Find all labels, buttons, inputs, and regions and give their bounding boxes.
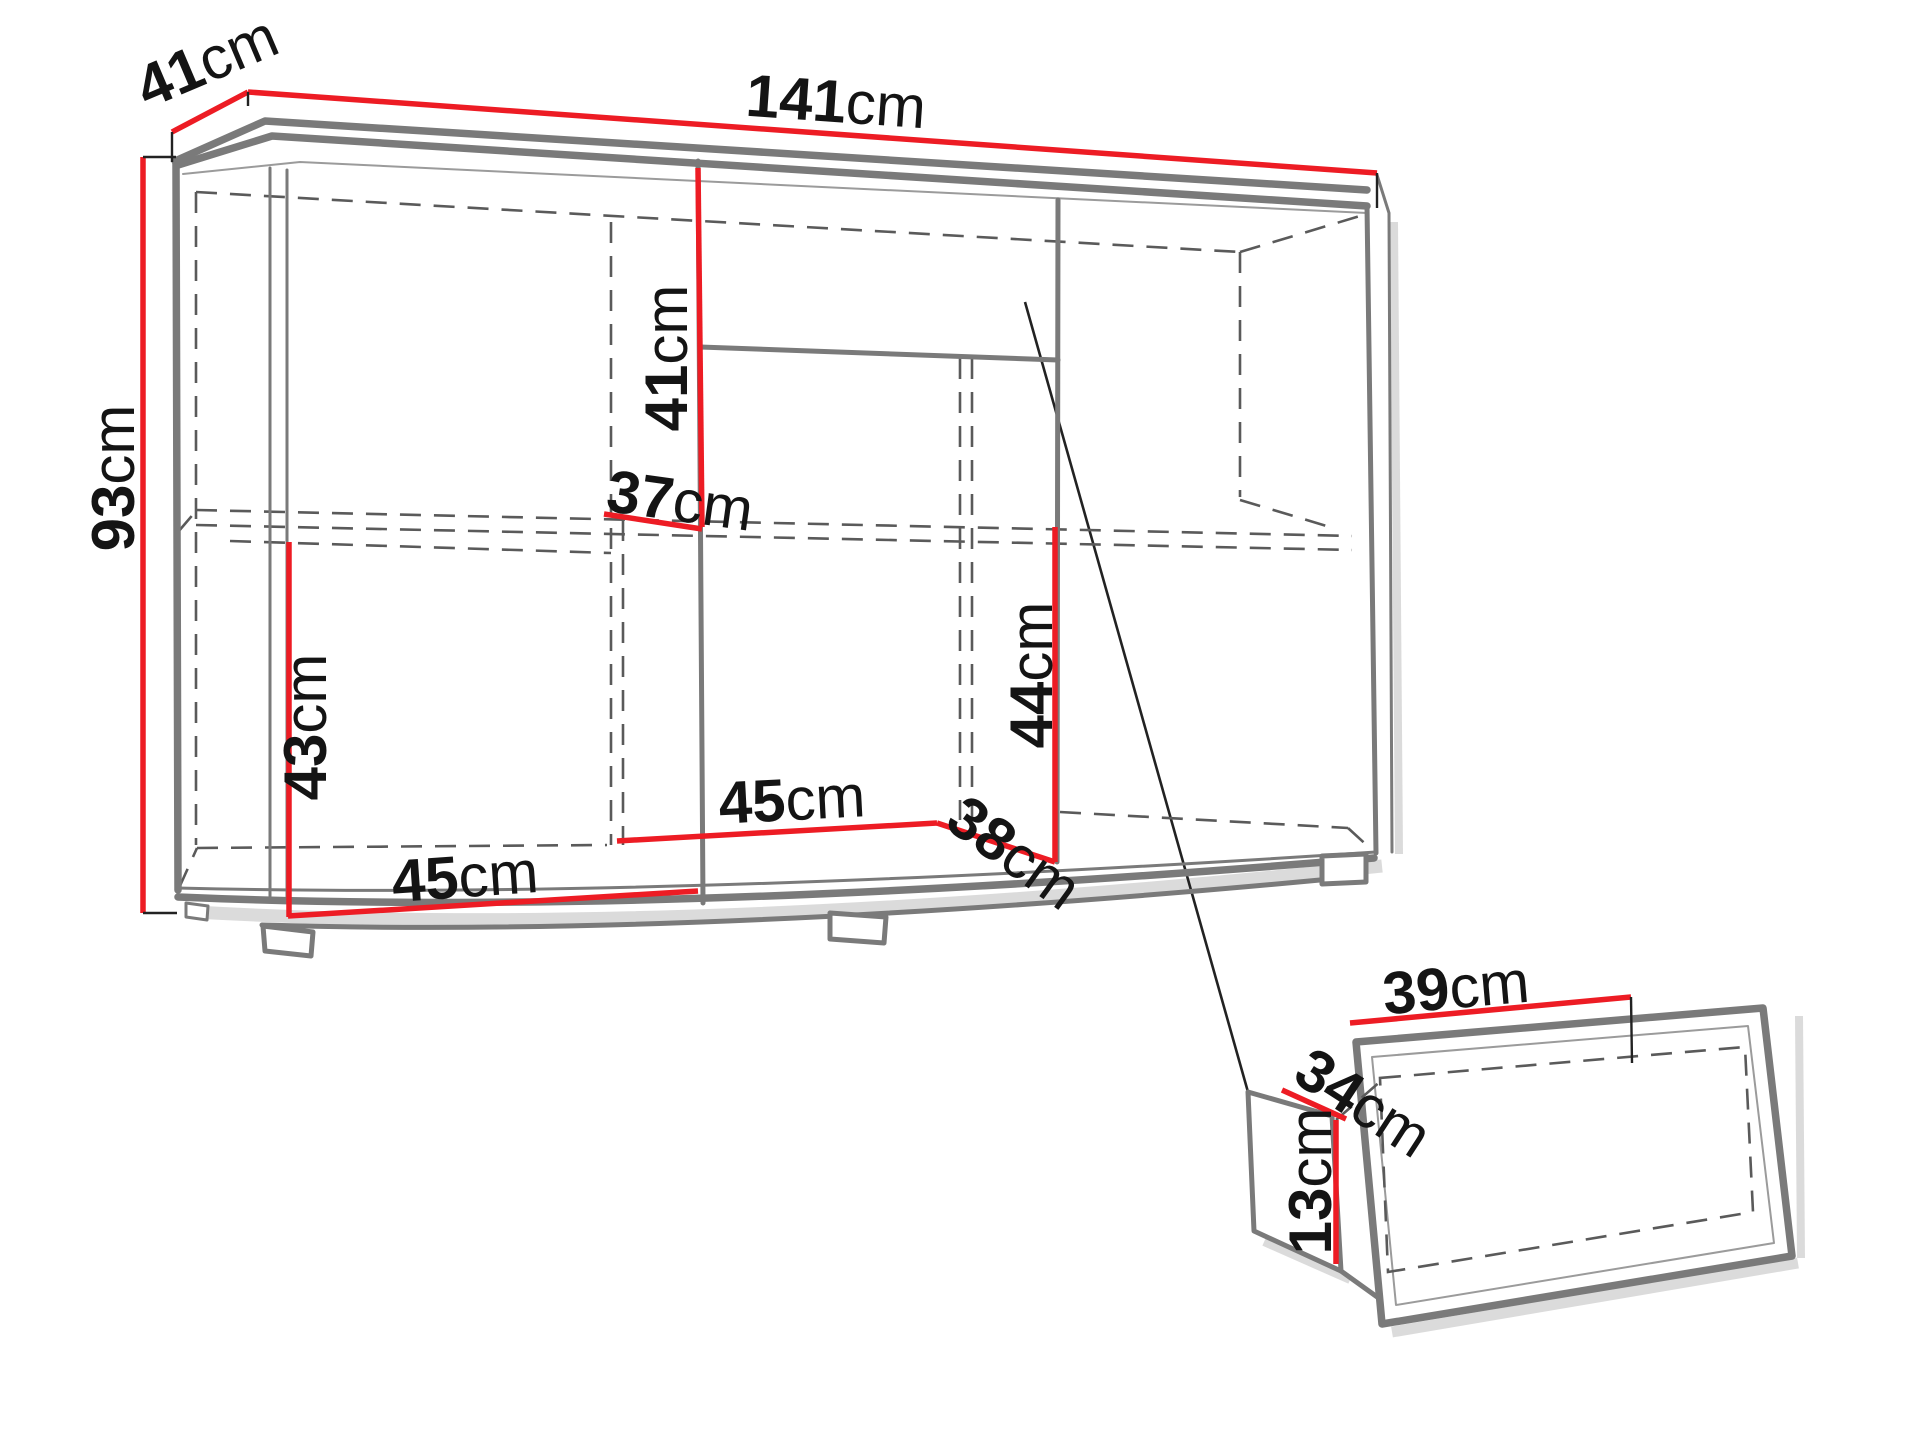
dim-middle-section-width: 45cm	[717, 766, 867, 834]
dim-drawer-height: 13cm	[1281, 1108, 1341, 1255]
dim-middle-top-section-height: 41cm	[637, 285, 697, 432]
dim-cabinet-height: 93cm	[84, 405, 144, 552]
dimension-diagram: 41cm 141cm 93cm 41cm 37cm 43cm 45cm 45cm…	[0, 0, 1912, 1434]
dim-left-section-lower-height: 43cm	[276, 654, 336, 801]
dim-right-section-lower-height: 44cm	[1002, 602, 1062, 749]
dim-drawer-width: 39cm	[1380, 952, 1531, 1025]
dim-cabinet-width: 141cm	[744, 66, 928, 138]
dim-left-section-width: 45cm	[390, 842, 541, 912]
